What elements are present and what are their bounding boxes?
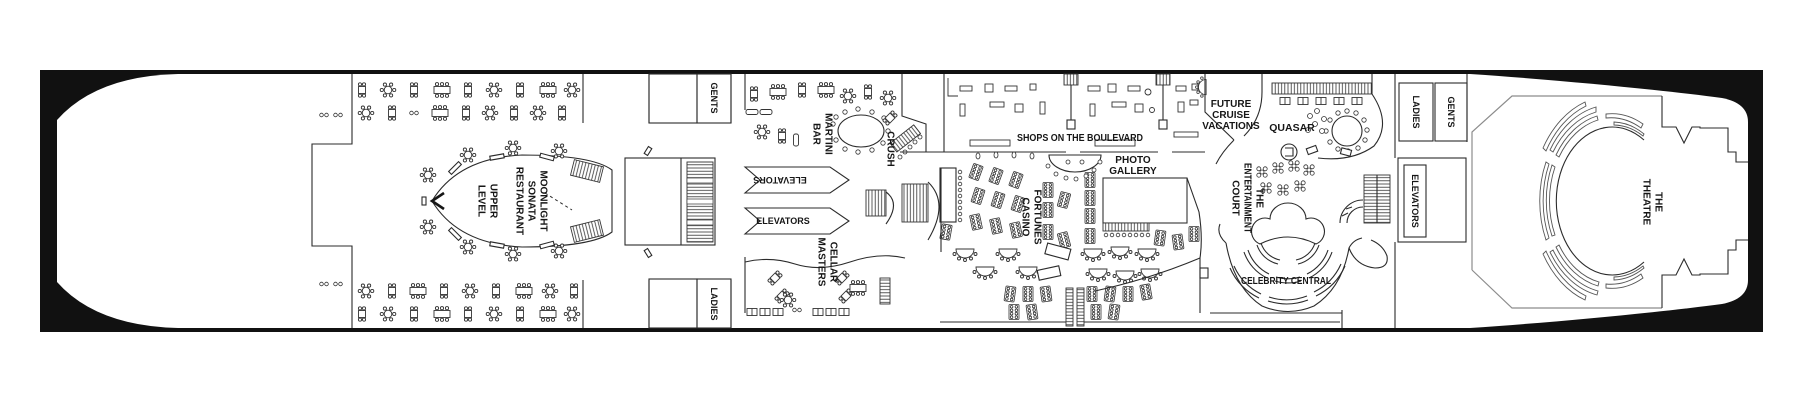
label-crush: CRUSH: [885, 131, 896, 167]
label-ladies-fwd: LADIES: [709, 287, 719, 320]
label-restaurant-3: RESTAURANT: [514, 167, 525, 235]
label-casino-2: CASINO: [1020, 198, 1031, 237]
label-theatre-1: THE: [1653, 192, 1664, 212]
label-ladies-aft: LADIES: [1411, 95, 1421, 128]
label-martini-2: BAR: [811, 123, 822, 145]
label-elevators-mid-lower: ELEVATORS: [756, 216, 810, 226]
label-fcv-2: CRUISE: [1212, 110, 1250, 121]
label-court-2: ENTERTAINMENT: [1242, 163, 1253, 233]
label-restaurant-1: MOONLIGHT: [538, 170, 549, 231]
label-gents-aft: GENTS: [1446, 96, 1456, 127]
label-restaurant-2: SONATA: [526, 181, 537, 222]
label-shops: SHOPS ON THE BOULEVARD: [1017, 132, 1143, 144]
label-celebrity-central: CELEBRITY CENTRAL: [1241, 275, 1331, 287]
deck-plan-page: MOONLIGHT SONATA RESTAURANT UPPER LEVEL …: [0, 0, 1800, 400]
label-cellar-2: MASTERS: [816, 238, 827, 287]
label-court-1: THE: [1254, 188, 1265, 208]
deck-plan-figure: MOONLIGHT SONATA RESTAURANT UPPER LEVEL …: [0, 0, 1800, 400]
label-theatre-2: THEATRE: [1641, 179, 1652, 226]
label-cellar-1: CELLAR: [828, 242, 839, 283]
label-martini-1: MARTINI: [823, 113, 834, 155]
label-fcv-1: FUTURE: [1211, 99, 1252, 110]
label-quasar: QUASAR: [1269, 122, 1315, 134]
label-gents-fwd: GENTS: [709, 82, 719, 113]
label-fcv-3: VACATIONS: [1202, 121, 1260, 132]
label-casino-1: FORTUNES: [1032, 190, 1043, 245]
label-upper-level-2: LEVEL: [476, 185, 487, 217]
label-court-3: COURT: [1230, 180, 1241, 216]
label-elevators-aft: ELEVATORS: [1410, 174, 1420, 228]
label-upper-level-1: UPPER: [488, 184, 499, 219]
label-photo-1: PHOTO: [1115, 155, 1151, 166]
label-elevators-mid-upper: ELEVATORS: [753, 175, 807, 185]
label-photo-2: GALLERY: [1109, 166, 1157, 177]
